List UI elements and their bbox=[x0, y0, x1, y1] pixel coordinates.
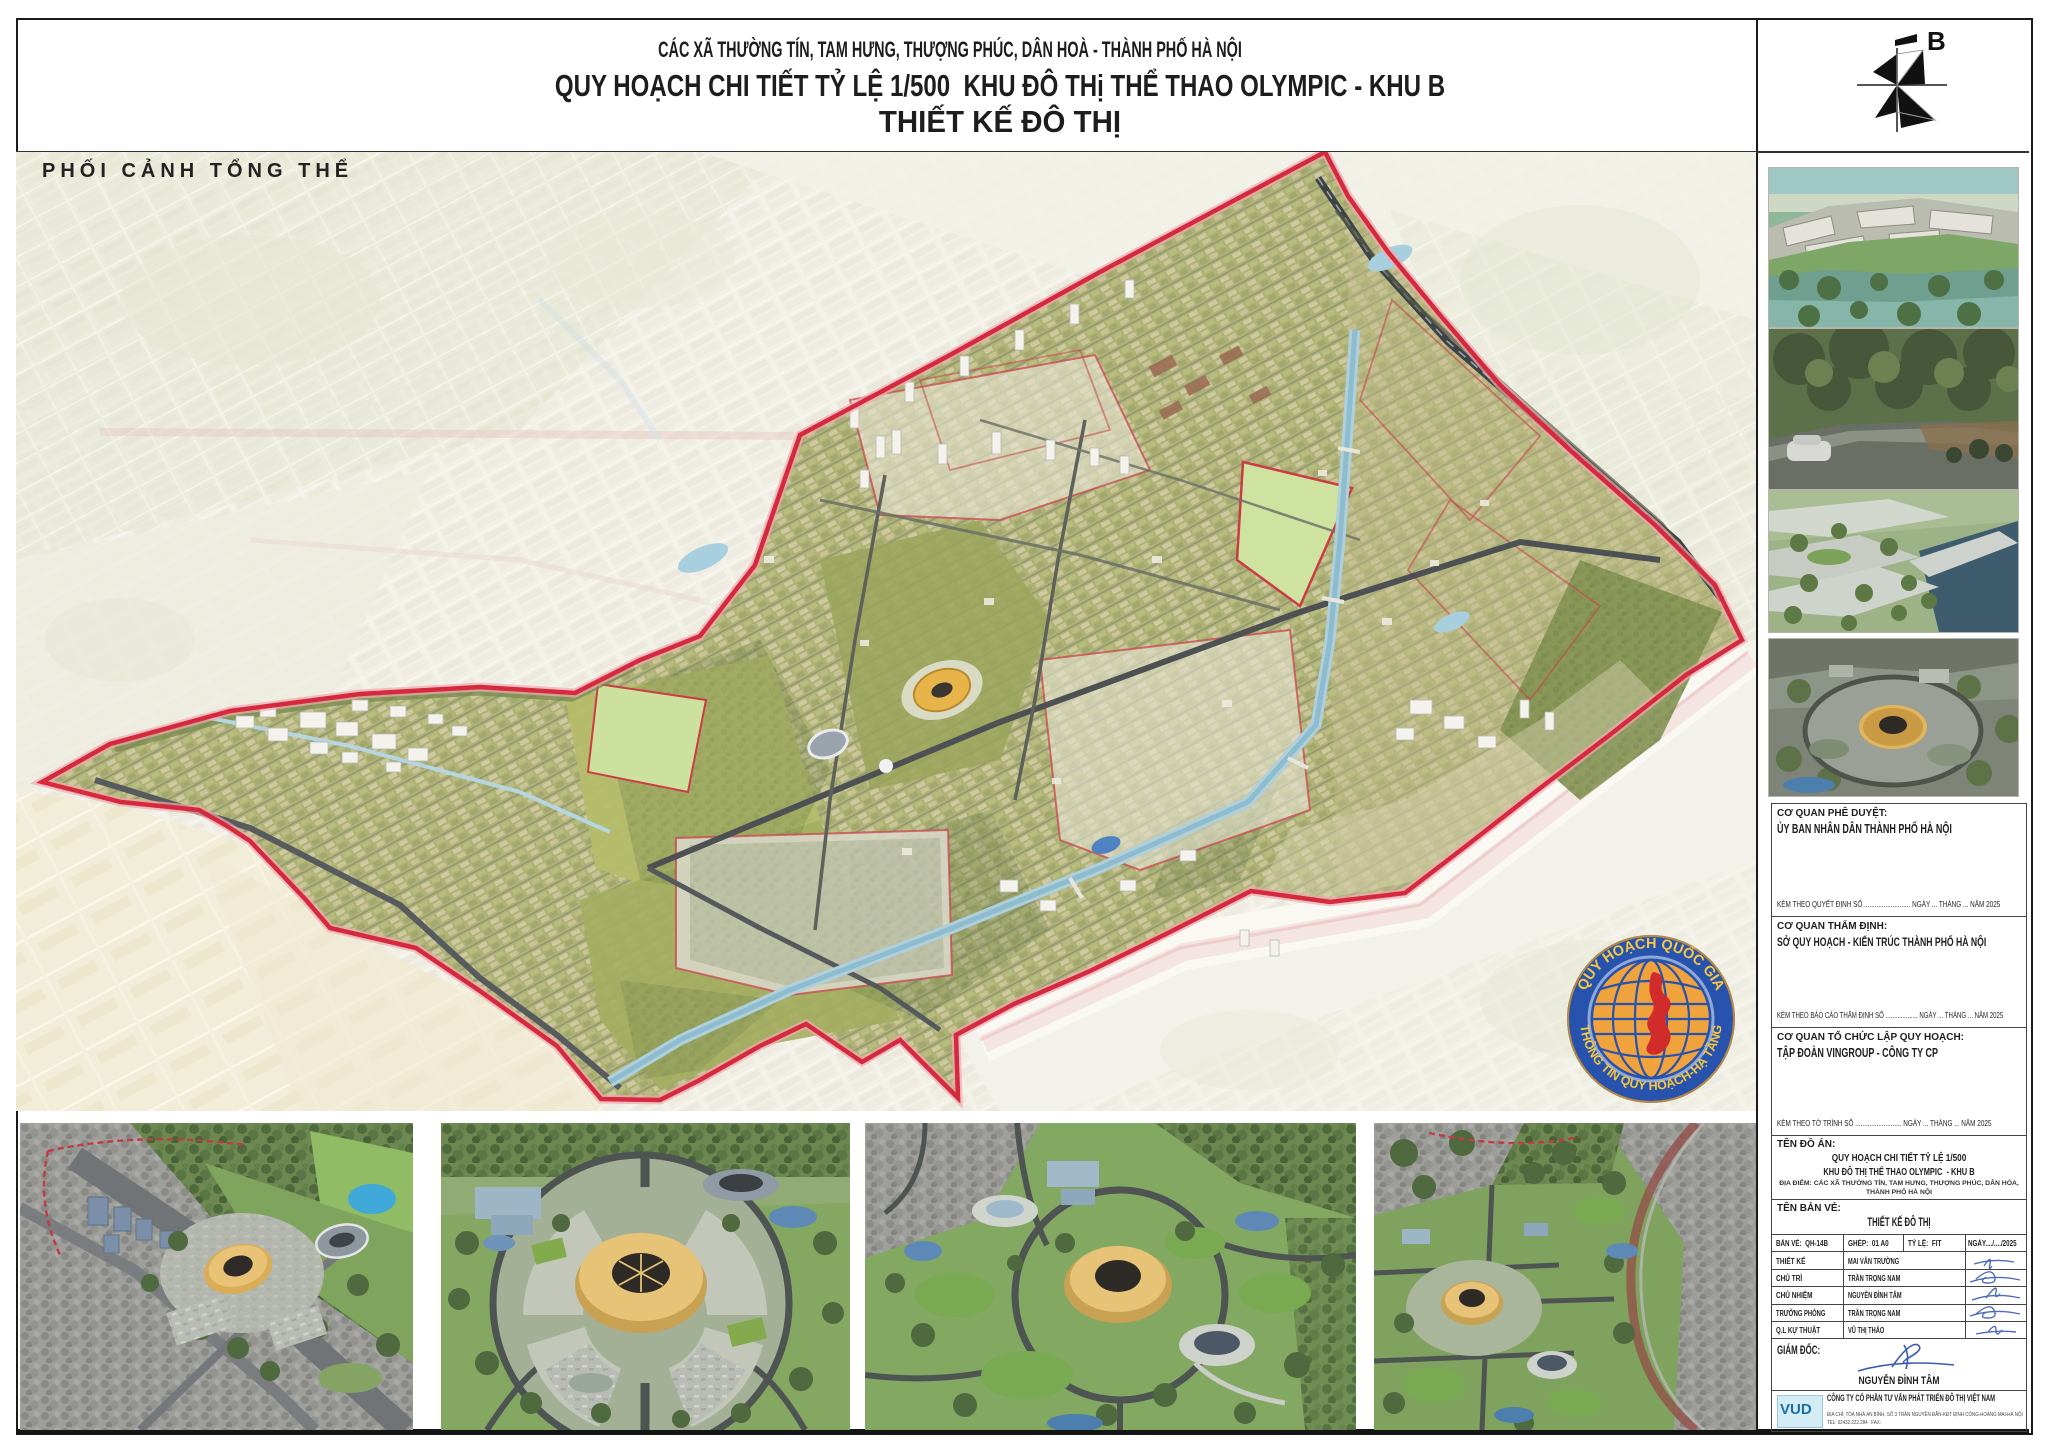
svg-text:B: B bbox=[1927, 28, 1946, 56]
